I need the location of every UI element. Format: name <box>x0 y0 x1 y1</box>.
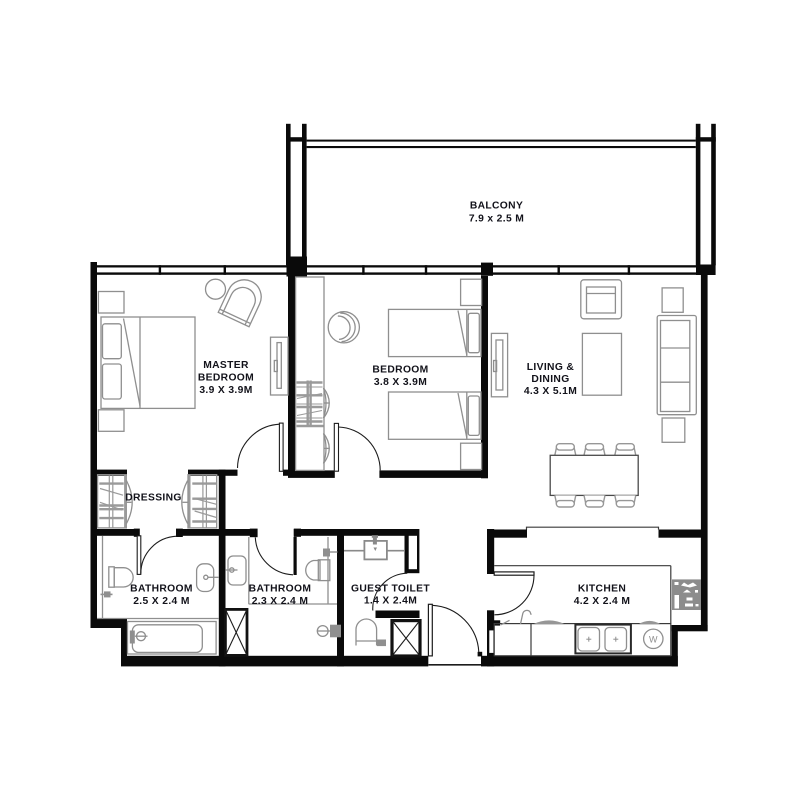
svg-text:2.5 X 2.4 M: 2.5 X 2.4 M <box>133 596 190 607</box>
svg-text:LIVING &: LIVING & <box>527 362 575 373</box>
svg-text:DINING: DINING <box>531 374 569 385</box>
svg-text:3.9 X 3.9M: 3.9 X 3.9M <box>199 385 252 396</box>
svg-text:7.9 x 2.5 M: 7.9 x 2.5 M <box>469 214 524 225</box>
svg-text:KITCHEN: KITCHEN <box>578 584 626 595</box>
svg-text:BATHROOM: BATHROOM <box>130 584 193 595</box>
svg-text:MASTER: MASTER <box>203 360 249 371</box>
svg-text:1.4 X 2.4M: 1.4 X 2.4M <box>364 596 417 607</box>
svg-text:2.3 X 2.4 M: 2.3 X 2.4 M <box>252 596 309 607</box>
svg-text:3.8 X 3.9M: 3.8 X 3.9M <box>374 377 427 388</box>
svg-text:GUEST TOILET: GUEST TOILET <box>351 584 430 595</box>
svg-text:BATHROOM: BATHROOM <box>249 584 312 595</box>
svg-text:W: W <box>649 635 658 645</box>
svg-text:BEDROOM: BEDROOM <box>198 373 254 384</box>
svg-text:4.3 X 5.1M: 4.3 X 5.1M <box>524 386 577 397</box>
svg-text:DRESSING: DRESSING <box>125 493 182 504</box>
svg-text:BALCONY: BALCONY <box>470 201 523 212</box>
svg-text:BEDROOM: BEDROOM <box>372 365 428 376</box>
svg-text:4.2 X 2.4 M: 4.2 X 2.4 M <box>574 596 631 607</box>
